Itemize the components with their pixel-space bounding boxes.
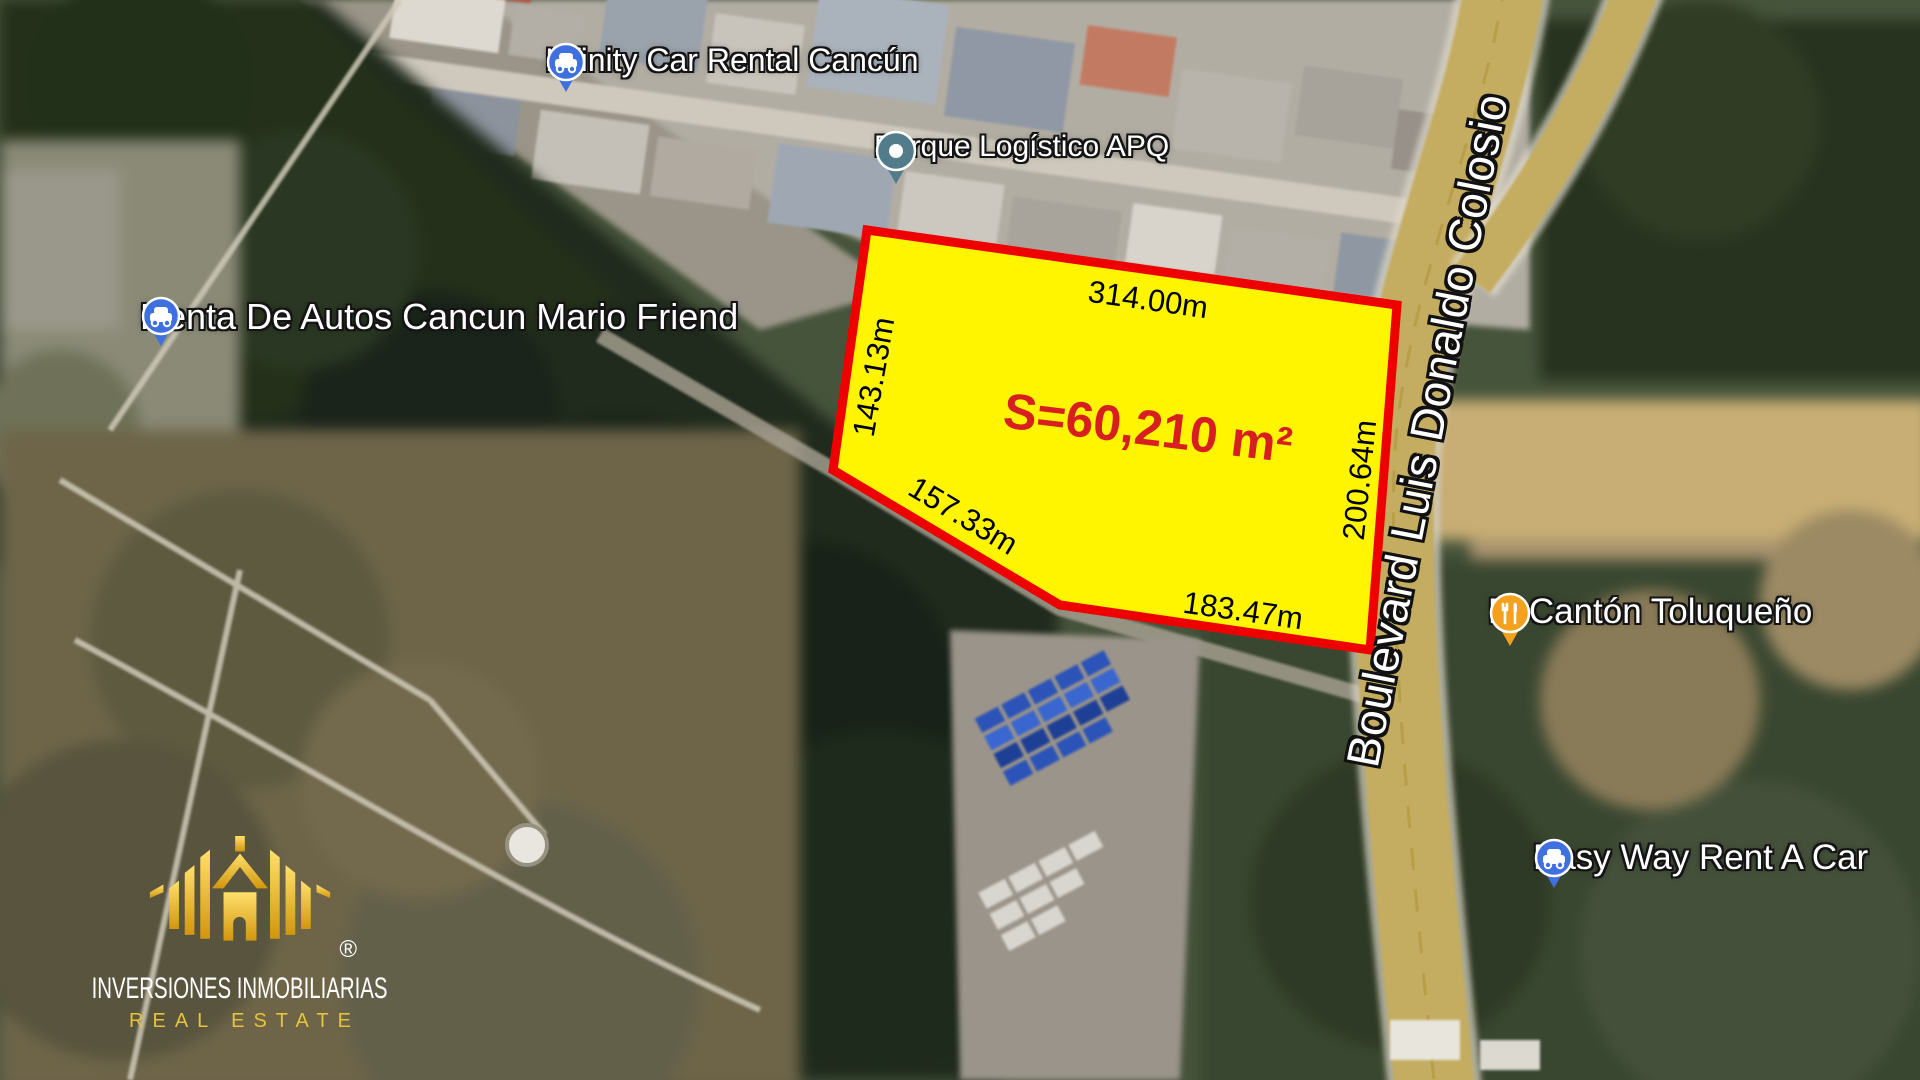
place-label-renta-de-autos: Renta De Autos Cancun Mario Friend <box>140 296 738 338</box>
place-label-text: Infinity Car Rental Cancún <box>545 42 919 79</box>
restaurant-pin-icon <box>1488 592 1532 648</box>
location-pin-icon <box>874 130 918 186</box>
car-rental-pin-icon <box>140 296 182 348</box>
car-rental-pin-icon <box>1533 838 1575 890</box>
place-label-el-canton: El Cantón Toluqueño <box>1488 592 1812 632</box>
place-label-parque-logistico: Parque Logístico APQ <box>874 130 1169 164</box>
car-rental-pin-icon <box>545 42 587 94</box>
company-name: INVERSIONES INMOBILIARIAS <box>92 972 388 1006</box>
satellite-map: Boulevard Luis Donaldo Colosio Infinity … <box>0 0 1920 1080</box>
place-label-text: El Cantón Toluqueño <box>1488 592 1812 632</box>
place-label-infinity-car-rental: Infinity Car Rental Cancún <box>545 42 919 79</box>
company-logo: ® INVERSIONES INMOBILIARIAS REAL ESTATE <box>58 836 422 1033</box>
buildings-logo-icon <box>145 836 335 962</box>
place-label-text: Easy Way Rent A Car <box>1533 838 1868 878</box>
place-label-easy-way: Easy Way Rent A Car <box>1533 838 1868 878</box>
company-tagline: REAL ESTATE <box>120 1010 360 1033</box>
place-label-text: Renta De Autos Cancun Mario Friend <box>140 296 738 338</box>
registered-trademark: ® <box>339 936 357 964</box>
place-label-text: Parque Logístico APQ <box>874 130 1169 164</box>
